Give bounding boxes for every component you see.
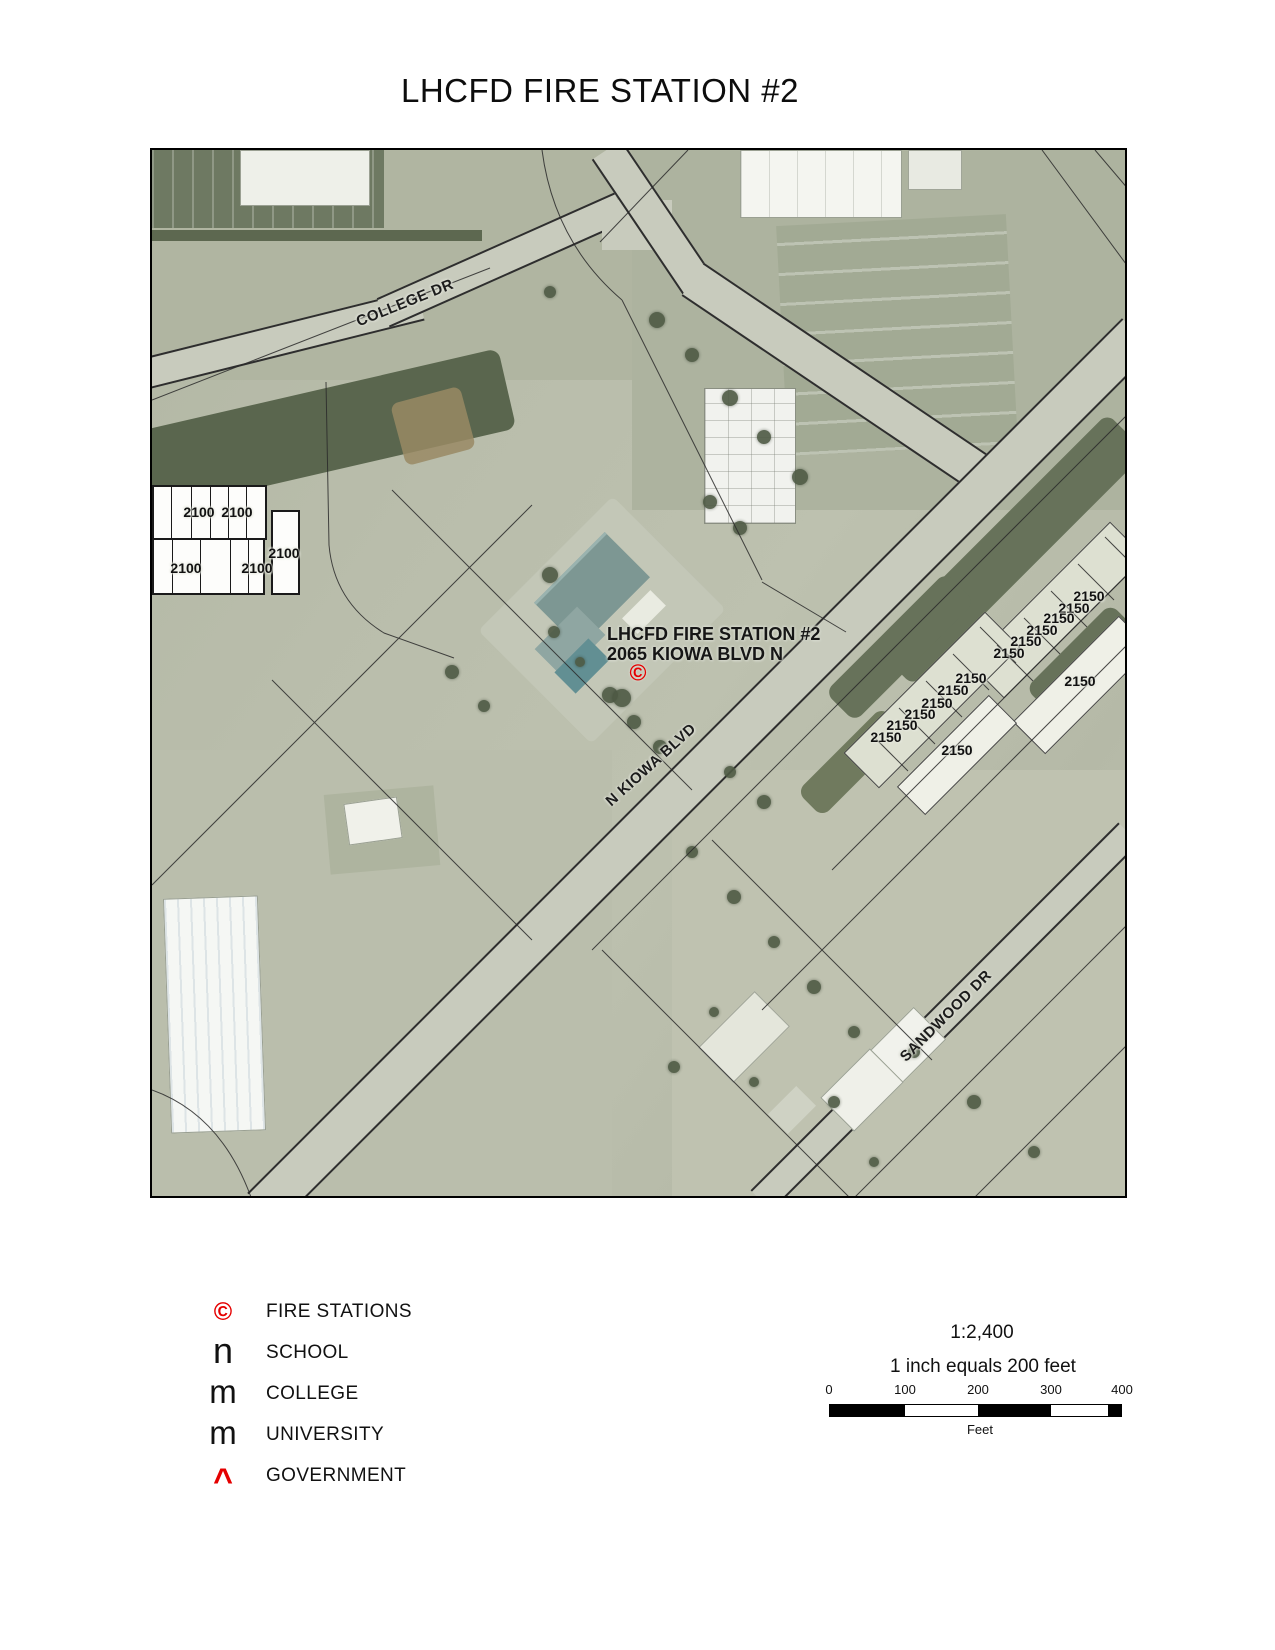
- fire-station-marker-icon: ©: [630, 660, 647, 687]
- map-frame: 2100210021002100210021502150215021502150…: [150, 148, 1127, 1198]
- fire-station-name: LHCFD FIRE STATION #2: [607, 624, 820, 644]
- government-symbol-icon: ^: [200, 1456, 246, 1506]
- legend-item-college: m COLLEGE: [180, 1374, 520, 1414]
- scale-bar: [829, 1404, 1122, 1417]
- parcel-number-label: 2150: [870, 729, 901, 745]
- legend-item-label: FIRE STATIONS: [266, 1292, 412, 1332]
- page-title: LHCFD FIRE STATION #2: [0, 72, 1200, 110]
- legend-item-label: GOVERNMENT: [266, 1456, 406, 1496]
- scale-tick: 400: [1102, 1382, 1142, 1397]
- scale-tick: 100: [885, 1382, 925, 1397]
- university-symbol-icon: m: [200, 1415, 246, 1451]
- scale-tick: 300: [1031, 1382, 1071, 1397]
- fire-station-label: LHCFD FIRE STATION #2 2065 KIOWA BLVD N: [607, 624, 820, 664]
- satellite-map: 2100210021002100210021502150215021502150…: [152, 150, 1125, 1196]
- school-symbol-icon: n: [200, 1333, 246, 1369]
- parcel-number-label: 2100: [183, 504, 214, 520]
- legend-item-university: m UNIVERSITY: [180, 1415, 520, 1455]
- parcel-number-label: 2150: [1064, 673, 1095, 689]
- legend-item-label: SCHOOL: [266, 1333, 349, 1373]
- legend-item-fire-stations: © FIRE STATIONS: [180, 1292, 520, 1332]
- parcel-number-label: 2100: [268, 545, 299, 561]
- scale-info: 1:2,400 1 inch equals 200 feet 0 100 200…: [770, 1318, 1150, 1448]
- parcel-number-label: 2150: [941, 742, 972, 758]
- parcel-number-label: 2150: [993, 645, 1024, 661]
- scale-tick: 0: [809, 1382, 849, 1397]
- legend-item-label: UNIVERSITY: [266, 1415, 384, 1455]
- scale-unit: Feet: [880, 1422, 1080, 1437]
- legend-item-government: ^ GOVERNMENT: [180, 1456, 520, 1496]
- scale-tick: 200: [958, 1382, 998, 1397]
- college-symbol-icon: m: [200, 1374, 246, 1410]
- parcel-number-label: 2100: [170, 560, 201, 576]
- parcel-number-label: 2100: [241, 560, 272, 576]
- scale-ratio: 1:2,400: [882, 1322, 1082, 1344]
- legend-item-label: COLLEGE: [266, 1374, 359, 1414]
- legend-item-school: n SCHOOL: [180, 1333, 520, 1373]
- scale-equivalence: 1 inch equals 200 feet: [783, 1356, 1183, 1378]
- parcel-number-label: 2100: [221, 504, 252, 520]
- fire-station-symbol-icon: ©: [200, 1292, 246, 1332]
- legend: © FIRE STATIONS n SCHOOL m COLLEGE m UNI…: [180, 1292, 520, 1502]
- map-sheet: LHCFD FIRE STATION #2: [0, 0, 1275, 1650]
